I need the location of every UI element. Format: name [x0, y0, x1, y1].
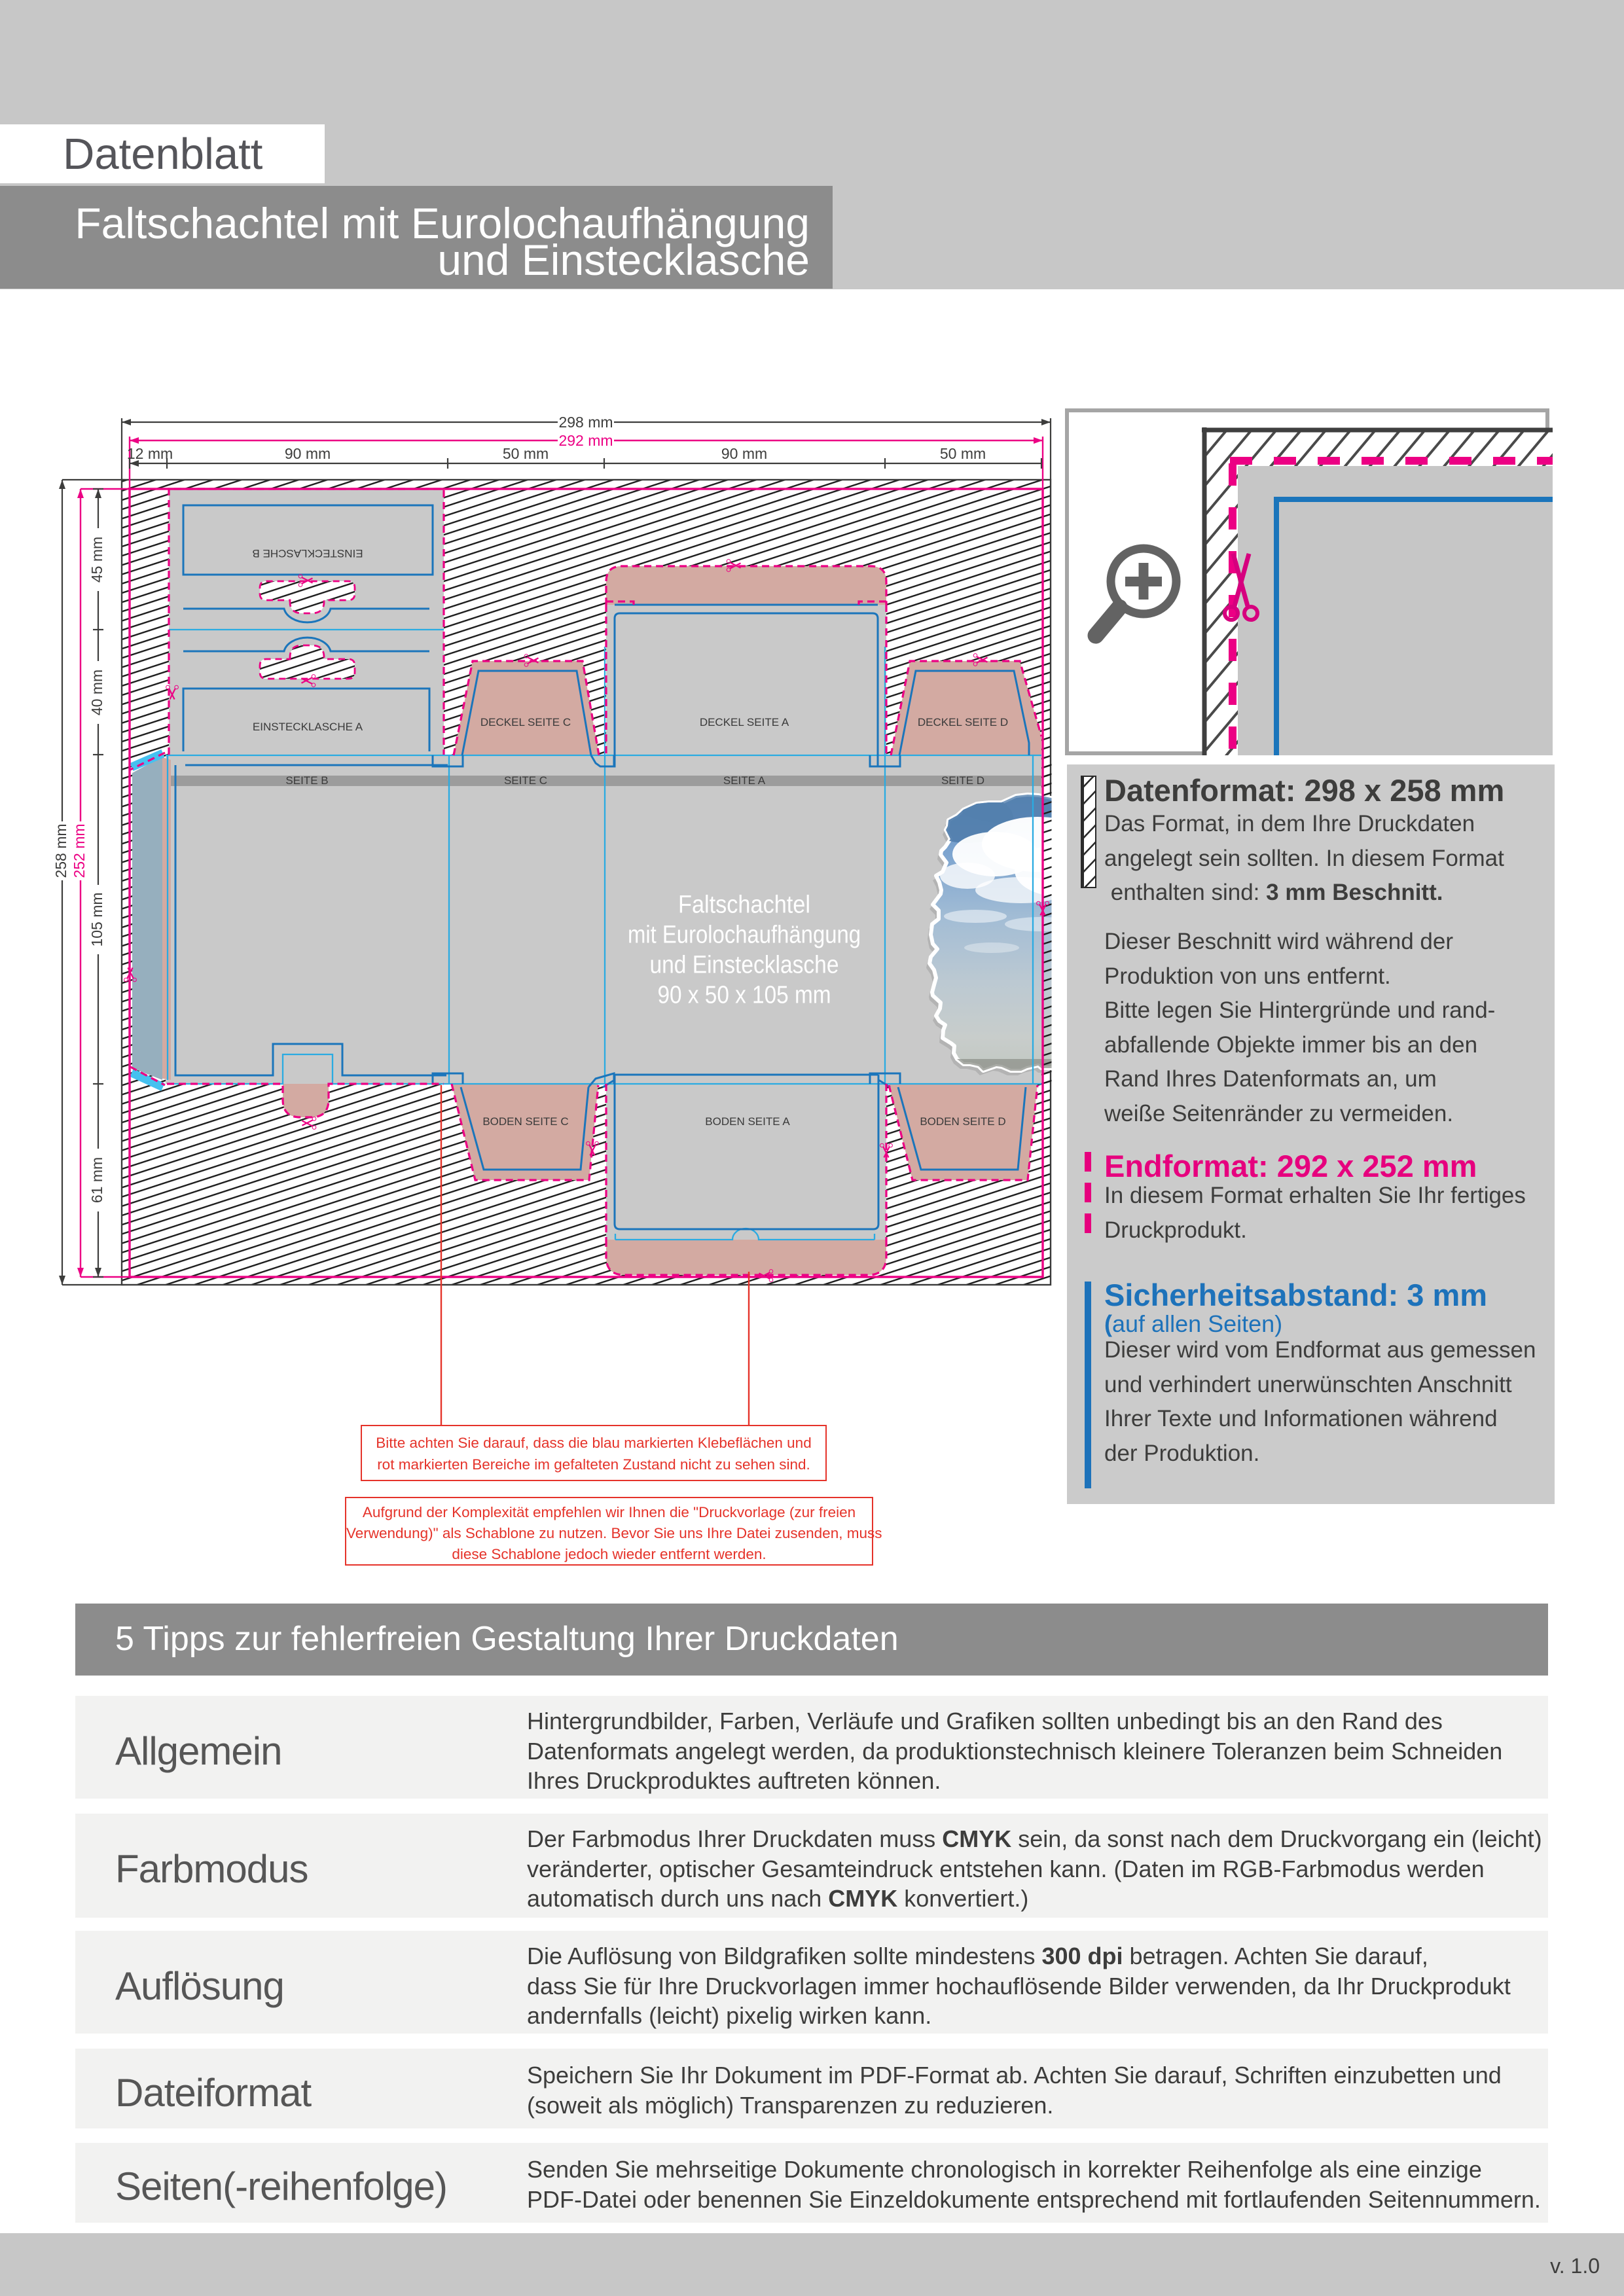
- svg-text:252 mm: 252 mm: [71, 823, 88, 878]
- svg-text:298 mm: 298 mm: [558, 414, 613, 431]
- svg-text:EINSTECKLASCHE A: EINSTECKLASCHE A: [253, 721, 363, 733]
- svg-text:90 x 50 x 105 mm: 90 x 50 x 105 mm: [658, 982, 831, 1009]
- svg-text:61 mm: 61 mm: [88, 1157, 105, 1203]
- svg-text:50 mm: 50 mm: [940, 445, 986, 462]
- svg-text:Faltschachtel: Faltschachtel: [678, 891, 810, 919]
- svg-text:SEITE D: SEITE D: [941, 774, 984, 787]
- svg-text:DECKEL SEITE A: DECKEL SEITE A: [700, 716, 789, 728]
- svg-text:SEITE C: SEITE C: [504, 774, 547, 787]
- svg-text:mit Eurolochaufhängung: mit Eurolochaufhängung: [628, 922, 861, 949]
- svg-text:292 mm: 292 mm: [558, 432, 613, 449]
- svg-text:SEITE A: SEITE A: [723, 774, 766, 787]
- svg-text:40 mm: 40 mm: [88, 670, 105, 715]
- svg-text:90 mm: 90 mm: [721, 445, 767, 462]
- svg-text:50 mm: 50 mm: [503, 445, 549, 462]
- svg-text:BODEN SEITE C: BODEN SEITE C: [482, 1115, 568, 1128]
- svg-text:105 mm: 105 mm: [88, 892, 105, 946]
- svg-text:BODEN SEITE A: BODEN SEITE A: [705, 1115, 790, 1128]
- svg-text:SEITE B: SEITE B: [285, 774, 328, 787]
- svg-text:45 mm: 45 mm: [88, 537, 105, 583]
- svg-text:EINSTECKLASCHE B: EINSTECKLASCHE B: [252, 547, 363, 560]
- svg-text:BODEN SEITE D: BODEN SEITE D: [920, 1115, 1005, 1128]
- svg-text:12 mm: 12 mm: [127, 445, 173, 462]
- svg-text:und Einstecklasche: und Einstecklasche: [650, 952, 839, 979]
- svg-text:258 mm: 258 mm: [52, 823, 69, 878]
- svg-text:90 mm: 90 mm: [285, 445, 331, 462]
- svg-text:DECKEL SEITE D: DECKEL SEITE D: [918, 716, 1008, 728]
- svg-text:DECKEL SEITE C: DECKEL SEITE C: [480, 716, 571, 728]
